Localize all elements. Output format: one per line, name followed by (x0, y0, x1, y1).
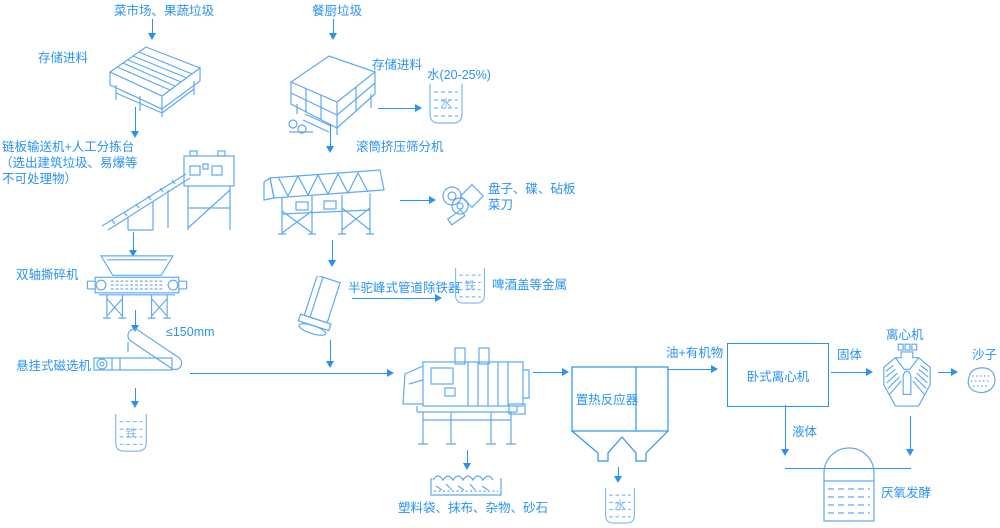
liquid-label: 液体 (792, 424, 817, 440)
storage-hopper2-figure (283, 44, 383, 136)
water-beaker-bottom-label: 水 (602, 497, 638, 513)
arrow-drum-to-plates (400, 200, 434, 201)
arrow-magnet-to-iron (135, 388, 136, 406)
iron-beaker-mid: 铁 (452, 266, 488, 306)
arrow-decanter-to-centrifuge (831, 372, 871, 373)
arrow-shredder-to-magnet (135, 310, 136, 330)
arrow-deironer-to-cooker (330, 340, 331, 366)
sand-label: 沙子 (972, 347, 997, 363)
magnetic-separator-label: 悬挂式磁选机 (16, 358, 91, 374)
arrow-reactor-to-water (618, 467, 619, 481)
arrow-decanter-liquid-down (785, 405, 786, 454)
arrow-cooker-to-reactor (533, 372, 567, 373)
arrow-storage2-to-water (378, 108, 420, 109)
source-vegetable-label: 菜市场、果蔬垃圾 (114, 3, 214, 19)
iron-beaker-left: 铁 (108, 412, 154, 454)
water-beaker-bottom: 水 (602, 486, 638, 526)
arrow-reactor-to-decanter (668, 369, 716, 370)
flow-diagram: 菜市场、果蔬垃圾 存储进料 链板输送机+人工分拣台 （选出建筑垃圾、易爆等 不可… (0, 0, 1000, 528)
horizontal-centrifuge-box: 卧式离心机 (727, 343, 829, 407)
plates-label-line1: 盘子、碟、砧板 (488, 181, 576, 197)
centrifuge-figure (878, 341, 936, 416)
storage-hopper1-figure (96, 38, 208, 118)
arrow-magnet-to-cooker (190, 373, 392, 374)
sand-blob-icon (963, 365, 997, 395)
oil-organics-label: 油+有机物 (666, 345, 723, 361)
shredder-label: 双轴撕碎机 (16, 267, 79, 283)
anaerobic-label: 厌氧发酵 (881, 485, 931, 501)
iron-beaker-mid-label: 铁 (452, 277, 488, 293)
storage-feed2-label: 存储进料 (372, 57, 422, 73)
drum-press-screen-figure (262, 156, 394, 240)
residue-label: 塑料袋、抹布、杂物、砂石 (398, 500, 548, 516)
hump-pipe-deironer-figure (292, 276, 350, 338)
plates-label-line2: 菜刀 (488, 197, 513, 213)
arrow-storage2-to-drum (330, 124, 331, 151)
arrow-veg-to-storage1 (152, 19, 153, 38)
beer-caps-label: 啤酒盖等金属 (492, 277, 567, 293)
source-kitchen-label: 餐厨垃圾 (312, 3, 362, 19)
water-beaker-top-label: 水 (426, 95, 466, 111)
chain-conveyor-label-line3: 不可处理物） (2, 171, 77, 187)
water-percent-label: 水(20-25%) (427, 67, 491, 83)
chain-conveyor-figure (98, 140, 238, 232)
cooker-machine-figure (393, 346, 538, 454)
arrow-cooker-to-residue (467, 450, 468, 468)
solid-label: 固体 (837, 347, 862, 363)
arrow-centrifuge-liquid-down (910, 416, 911, 454)
storage-feed1-label: 存储进料 (38, 50, 88, 66)
horizontal-centrifuge-label: 卧式离心机 (747, 366, 810, 385)
magnetic-separator-figure (88, 328, 193, 386)
fermentation-tank-figure (820, 443, 878, 525)
drum-screen-label: 滚筒挤压筛分机 (356, 139, 444, 155)
heat-reactor-figure: 置热反应器 (570, 365, 670, 467)
arrow-drum-to-deironer (332, 240, 333, 265)
plates-knife-icon (440, 180, 484, 228)
water-beaker-top: 水 (426, 82, 466, 126)
arrow-deironer-to-iron (352, 298, 440, 299)
arrow-kitchen-to-storage2 (333, 19, 334, 38)
iron-beaker-left-label: 铁 (108, 425, 154, 441)
double-shaft-shredder-figure (82, 252, 192, 322)
heat-reactor-label: 置热反应器 (574, 389, 640, 408)
arrow-centrifuge-to-sand (938, 372, 956, 373)
residue-tray-figure (428, 468, 504, 498)
arrow-storage1-to-conveyor (135, 107, 136, 136)
